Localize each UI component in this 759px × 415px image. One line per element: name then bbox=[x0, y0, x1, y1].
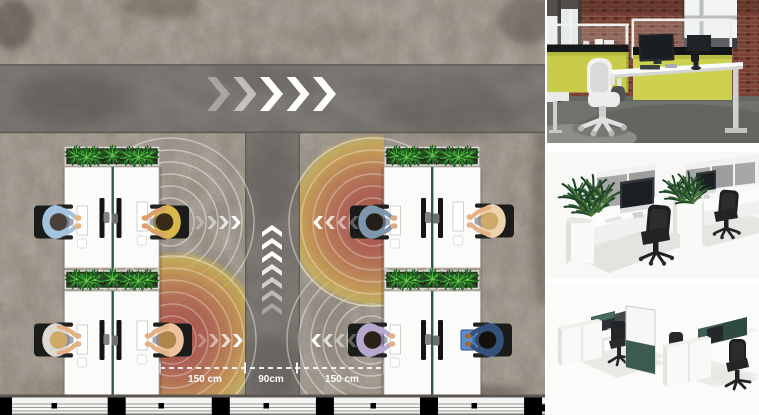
svg-text:150 cm: 150 cm bbox=[325, 374, 359, 385]
svg-text:150 cm: 150 cm bbox=[188, 374, 222, 385]
svg-text:90cm: 90cm bbox=[258, 374, 284, 385]
